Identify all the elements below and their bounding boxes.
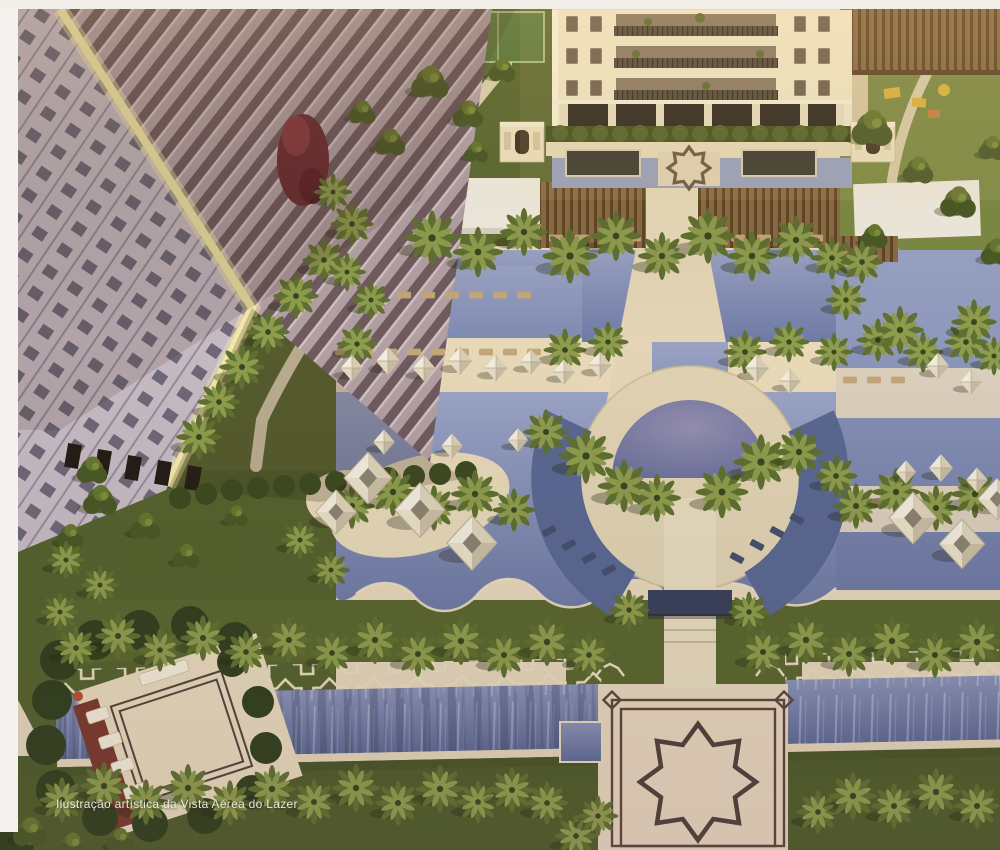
aerial-render-page: Ilustração artística da Vista Aérea do L… — [0, 0, 1000, 850]
lighting-overlays — [0, 0, 1000, 850]
scan-margin-top — [0, 0, 1000, 9]
scan-margin-left — [0, 8, 18, 832]
leisure-aerial-illustration — [0, 0, 1000, 850]
illustration-caption: Ilustração artística da Vista Aérea do L… — [56, 797, 298, 811]
